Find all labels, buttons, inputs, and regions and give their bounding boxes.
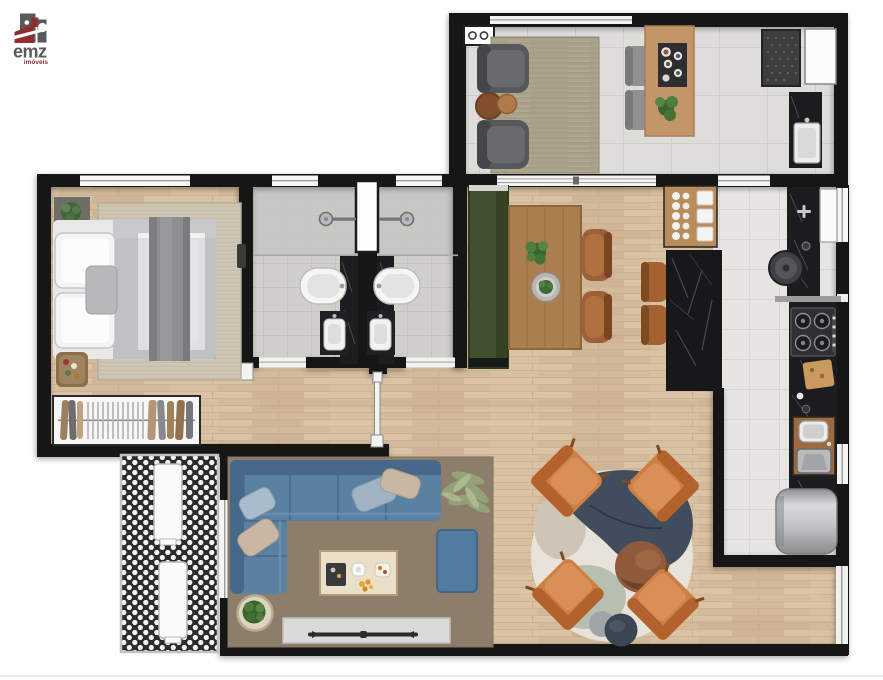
svg-text:imóveis: imóveis bbox=[24, 59, 49, 66]
